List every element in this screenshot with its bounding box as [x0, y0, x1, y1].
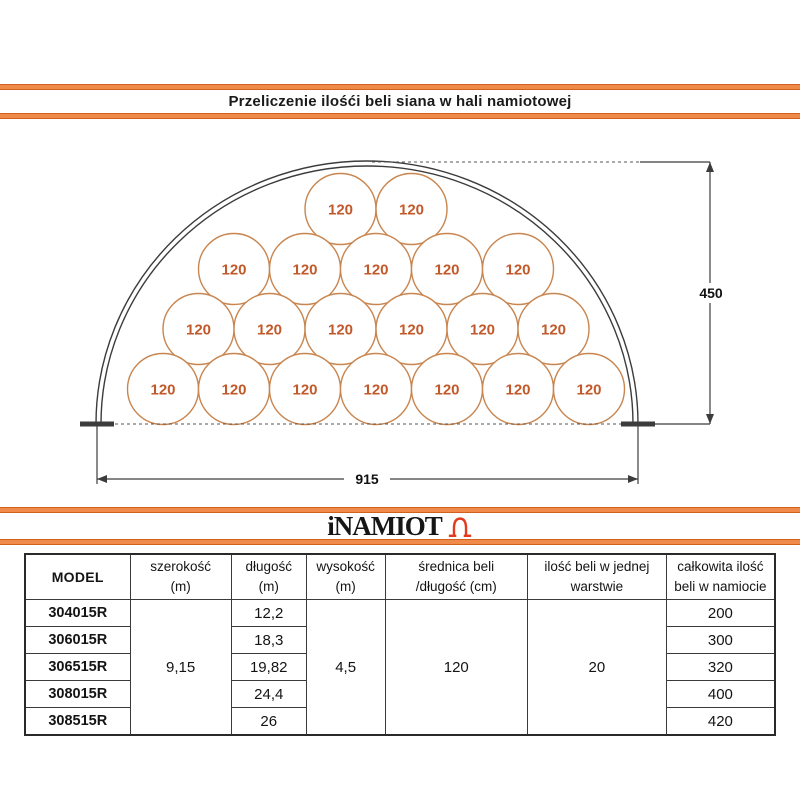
- col-header: ilość beli w jednejwarstwie: [528, 554, 667, 600]
- arrow-left-icon: [97, 475, 107, 483]
- bale-diameter-label: 120: [434, 262, 459, 279]
- page-title: Przeliczenie ilośći beli siana w hali na…: [0, 90, 800, 113]
- col-header: długość(m): [231, 554, 306, 600]
- model-cell: 308515R: [25, 708, 130, 736]
- model-cell: 306015R: [25, 627, 130, 654]
- bale-diameter-label: 120: [541, 322, 566, 339]
- dlugosc-cell: 24,4: [231, 681, 306, 708]
- col-header-line: (m): [307, 577, 385, 597]
- bale-diameter-label: 120: [328, 202, 353, 219]
- bale-diameter-label: 120: [505, 262, 530, 279]
- bale-diameter-label: 120: [363, 262, 388, 279]
- total-cell: 300: [666, 627, 775, 654]
- height-dimension-label: 450: [699, 285, 723, 301]
- total-cell: 420: [666, 708, 775, 736]
- top-margin: [0, 0, 800, 84]
- bale-diameter-label: 120: [150, 382, 175, 399]
- brand-logo: iNAMIOT: [0, 513, 800, 539]
- bale-diameter-label: 120: [399, 322, 424, 339]
- col-header-line: warstwie: [528, 577, 666, 597]
- arrow-down-icon: [706, 414, 714, 424]
- col-header: szerokość(m): [130, 554, 231, 600]
- col-header-line: /długość (cm): [386, 577, 528, 597]
- bale-diameter-label: 120: [221, 382, 246, 399]
- bale-diameter-label: 120: [221, 262, 246, 279]
- spec-table-body: 304015R9,1512,24,512020200306015R18,3300…: [25, 600, 775, 736]
- wysokosc-cell: 4,5: [306, 600, 385, 736]
- col-header: całkowita ilośćbeli w namiocie: [666, 554, 775, 600]
- dlugosc-cell: 19,82: [231, 654, 306, 681]
- bale-diameter-label: 120: [470, 322, 495, 339]
- bale-diameter-label: 120: [363, 382, 388, 399]
- bale-diameter-label: 120: [505, 382, 530, 399]
- total-cell: 200: [666, 600, 775, 627]
- srednica-cell: 120: [385, 600, 528, 736]
- dlugosc-cell: 18,3: [231, 627, 306, 654]
- bale-diameter-label: 120: [257, 322, 282, 339]
- col-header: średnica beli/długość (cm): [385, 554, 528, 600]
- bale-diameter-label: 120: [576, 382, 601, 399]
- width-dimension-label: 915: [355, 471, 379, 487]
- col-header-line: średnica beli: [386, 557, 528, 577]
- header-row: MODELszerokość(m)długość(m)wysokość(m)śr…: [25, 554, 775, 600]
- bale-diameter-label: 120: [292, 382, 317, 399]
- col-header-line: ilość beli w jednej: [528, 557, 666, 577]
- tent-foot-left: [80, 422, 114, 427]
- bale-diameter-label: 120: [399, 202, 424, 219]
- col-header-line: długość: [232, 557, 306, 577]
- table-row: 304015R9,1512,24,512020200: [25, 600, 775, 627]
- tent-cross-section-diagram: 1201201201201201201201201201201201201201…: [0, 119, 800, 507]
- col-header-line: wysokość: [307, 557, 385, 577]
- arrow-right-icon: [628, 475, 638, 483]
- bale-diameter-label: 120: [434, 382, 459, 399]
- tent-icon: [447, 514, 473, 539]
- dlugosc-cell: 12,2: [231, 600, 306, 627]
- arrow-up-icon: [706, 162, 714, 172]
- spec-table-head: MODELszerokość(m)długość(m)wysokość(m)śr…: [25, 554, 775, 600]
- dlugosc-cell: 26: [231, 708, 306, 736]
- model-cell: 306515R: [25, 654, 130, 681]
- brand-logo-text: iNAMIOT: [327, 513, 442, 539]
- col-header: MODEL: [25, 554, 130, 600]
- col-header-line: całkowita ilość: [667, 557, 774, 577]
- col-header-line: (m): [131, 577, 231, 597]
- col-header-line: beli w namiocie: [667, 577, 774, 597]
- model-cell: 304015R: [25, 600, 130, 627]
- model-cell: 308015R: [25, 681, 130, 708]
- szerokosc-cell: 9,15: [130, 600, 231, 736]
- bale-circles: 1201201201201201201201201201201201201201…: [128, 174, 625, 425]
- bale-diameter-label: 120: [292, 262, 317, 279]
- total-cell: 400: [666, 681, 775, 708]
- tent-diagram-svg: 1201201201201201201201201201201201201201…: [0, 119, 800, 507]
- spec-table: MODELszerokość(m)długość(m)wysokość(m)śr…: [24, 553, 776, 736]
- bale-diameter-label: 120: [328, 322, 353, 339]
- tent-foot-right: [621, 422, 655, 427]
- col-header-line: szerokość: [131, 557, 231, 577]
- col-header-line: MODEL: [26, 567, 130, 588]
- warstwa-cell: 20: [528, 600, 667, 736]
- col-header-line: (m): [232, 577, 306, 597]
- col-header: wysokość(m): [306, 554, 385, 600]
- total-cell: 320: [666, 654, 775, 681]
- bale-diameter-label: 120: [186, 322, 211, 339]
